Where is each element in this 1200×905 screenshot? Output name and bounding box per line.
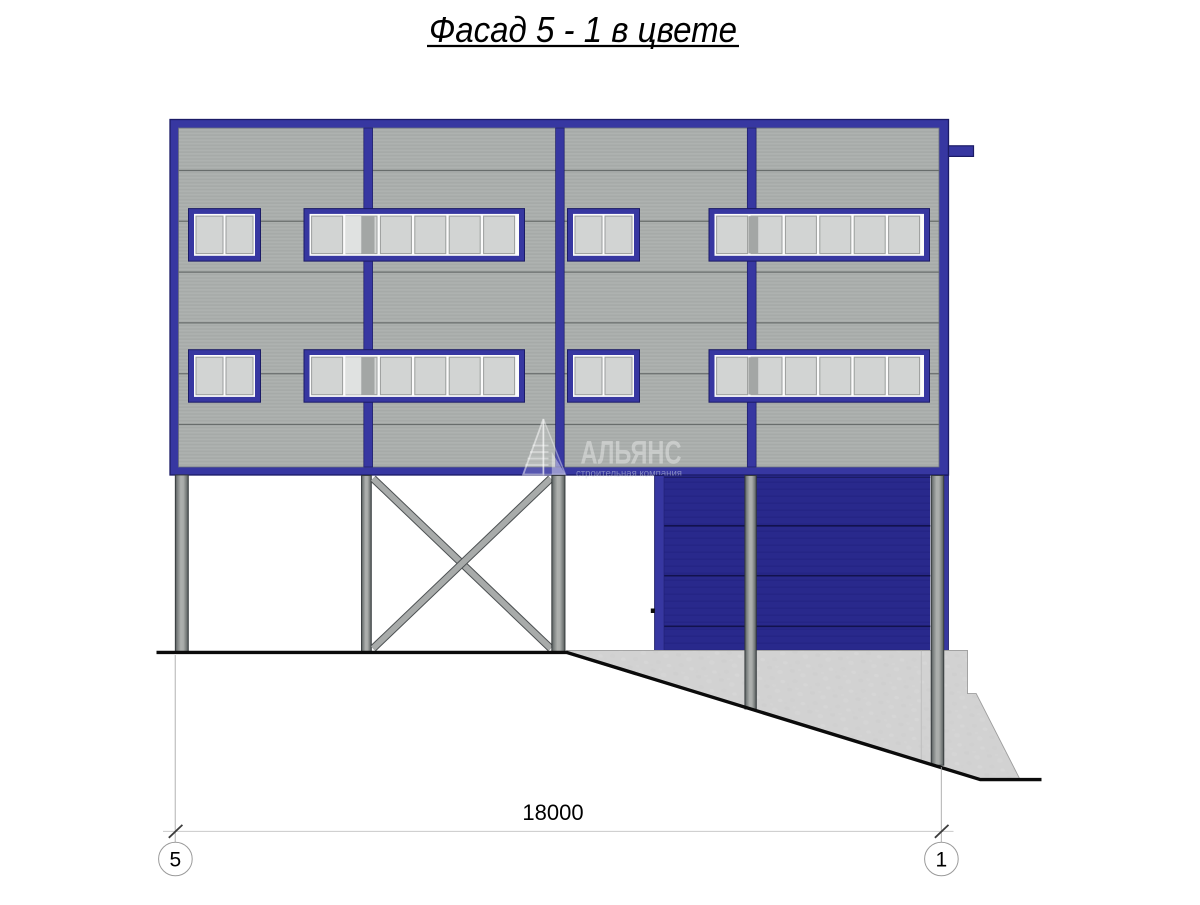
svg-text:Фасад 5 - 1 в цвете: Фасад 5 - 1 в цвете [429, 9, 737, 50]
svg-text:АЛЬЯНС: АЛЬЯНС [581, 435, 682, 471]
svg-text:18000: 18000 [522, 800, 583, 825]
svg-text:5: 5 [170, 849, 182, 872]
svg-text:1: 1 [936, 849, 948, 872]
